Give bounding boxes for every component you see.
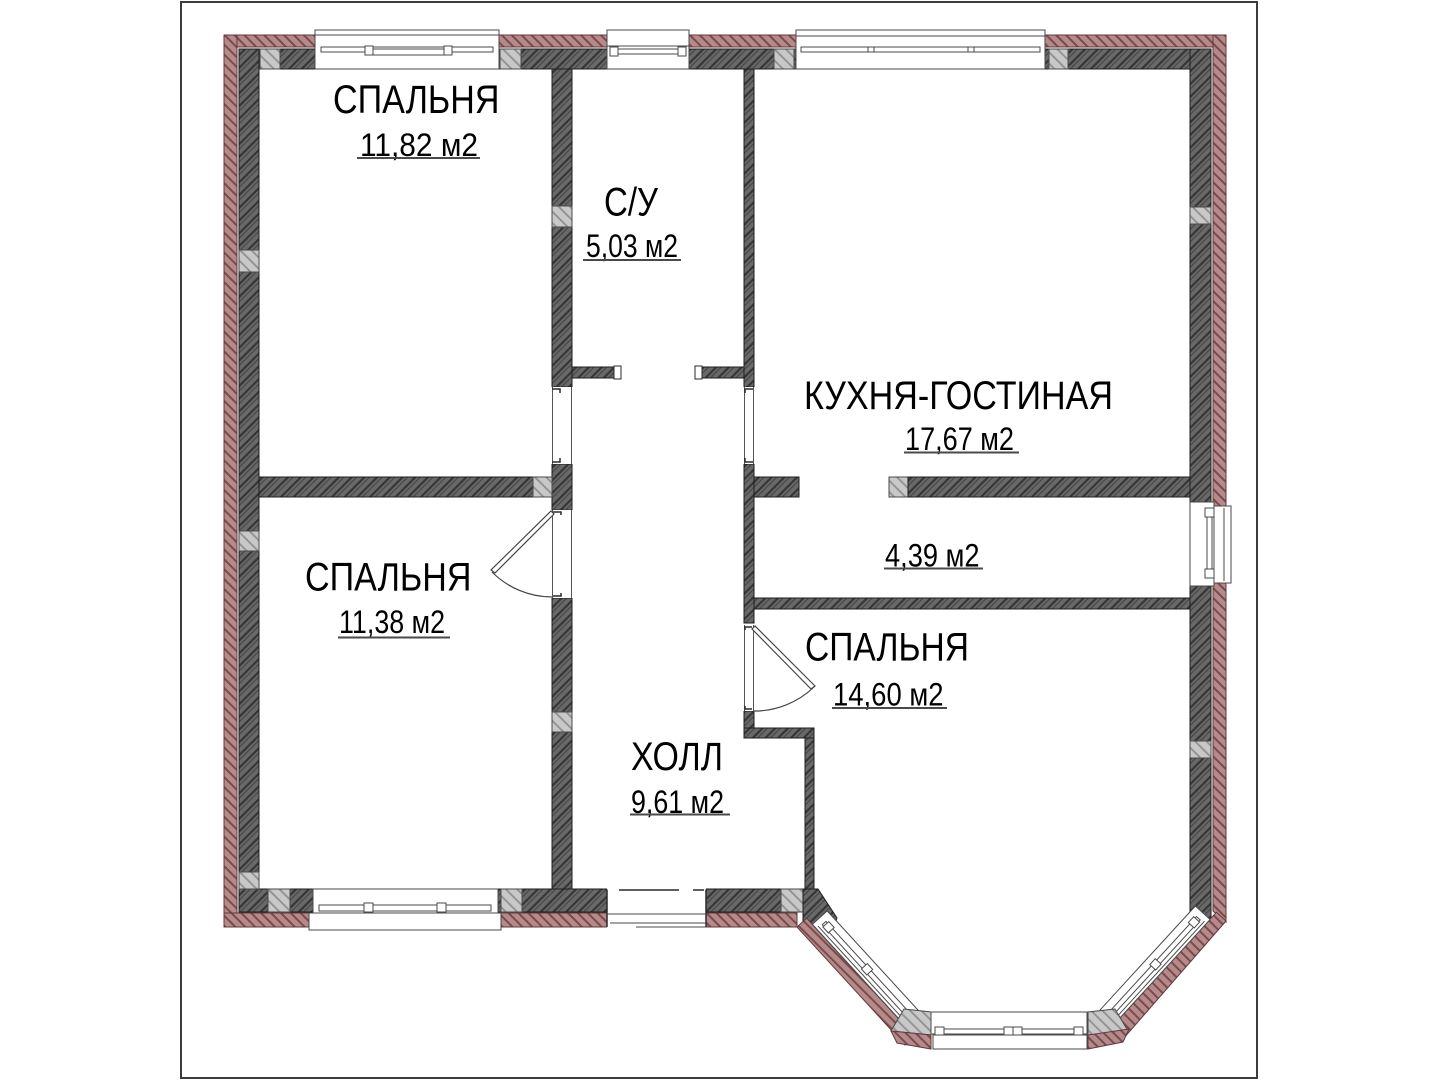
svg-text:11,38 м2: 11,38 м2 [339,604,445,640]
svg-text:ХОЛЛ: ХОЛЛ [631,735,723,779]
svg-text:5,03 м2: 5,03 м2 [586,228,678,264]
svg-text:СПАЛЬНЯ: СПАЛЬНЯ [805,626,969,670]
svg-text:СПАЛЬНЯ: СПАЛЬНЯ [305,556,472,600]
svg-text:СПАЛЬНЯ: СПАЛЬНЯ [333,78,500,122]
svg-text:С/У: С/У [604,181,658,225]
svg-text:КУХНЯ-ГОСТИНАЯ: КУХНЯ-ГОСТИНАЯ [804,374,1113,418]
